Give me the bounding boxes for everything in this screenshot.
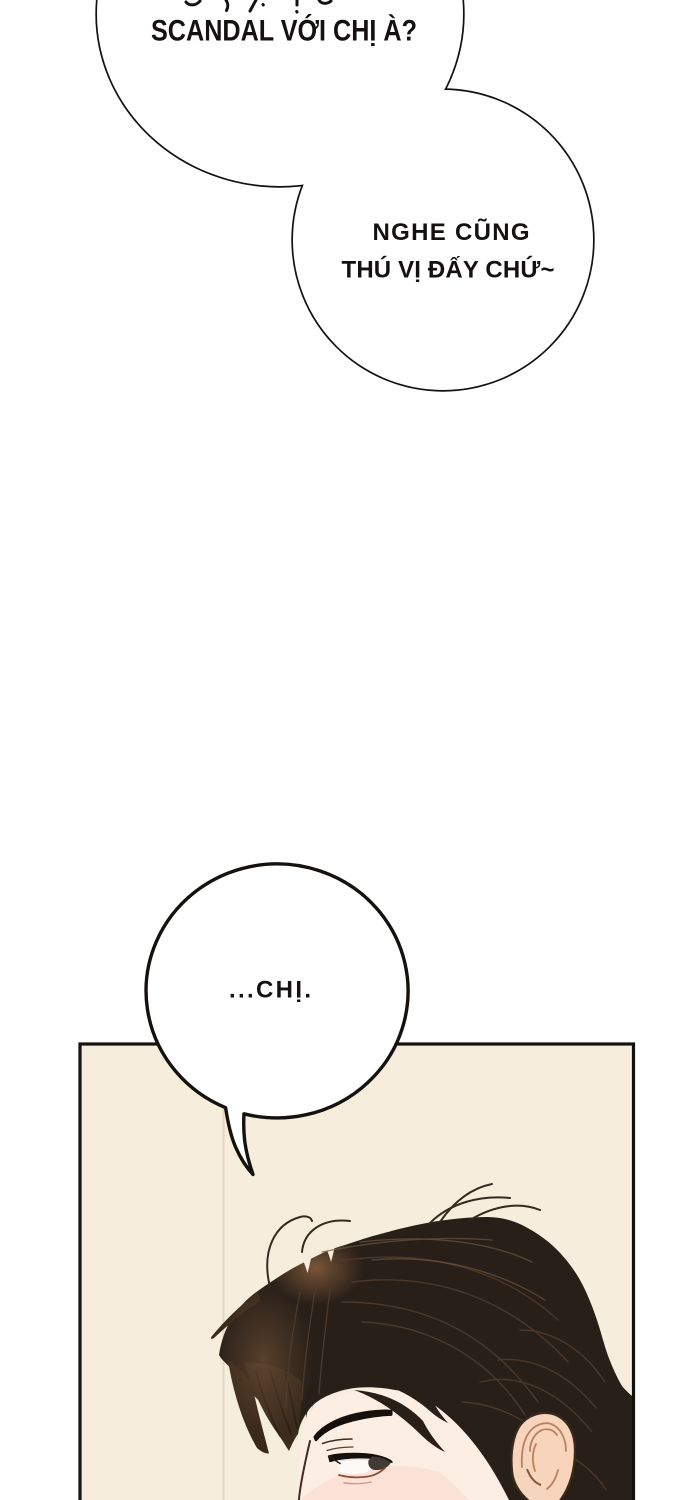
svg-text:SCANDAL VỚI CHỊ À?: SCANDAL VỚI CHỊ À? — [151, 14, 417, 48]
svg-text:THÚ VỊ ĐẤY CHỨ~: THÚ VỊ ĐẤY CHỨ~ — [342, 256, 555, 284]
svg-text:NGHE CŨNG: NGHE CŨNG — [373, 218, 530, 246]
svg-text:...CHỊ.: ...CHỊ. — [229, 977, 311, 1004]
